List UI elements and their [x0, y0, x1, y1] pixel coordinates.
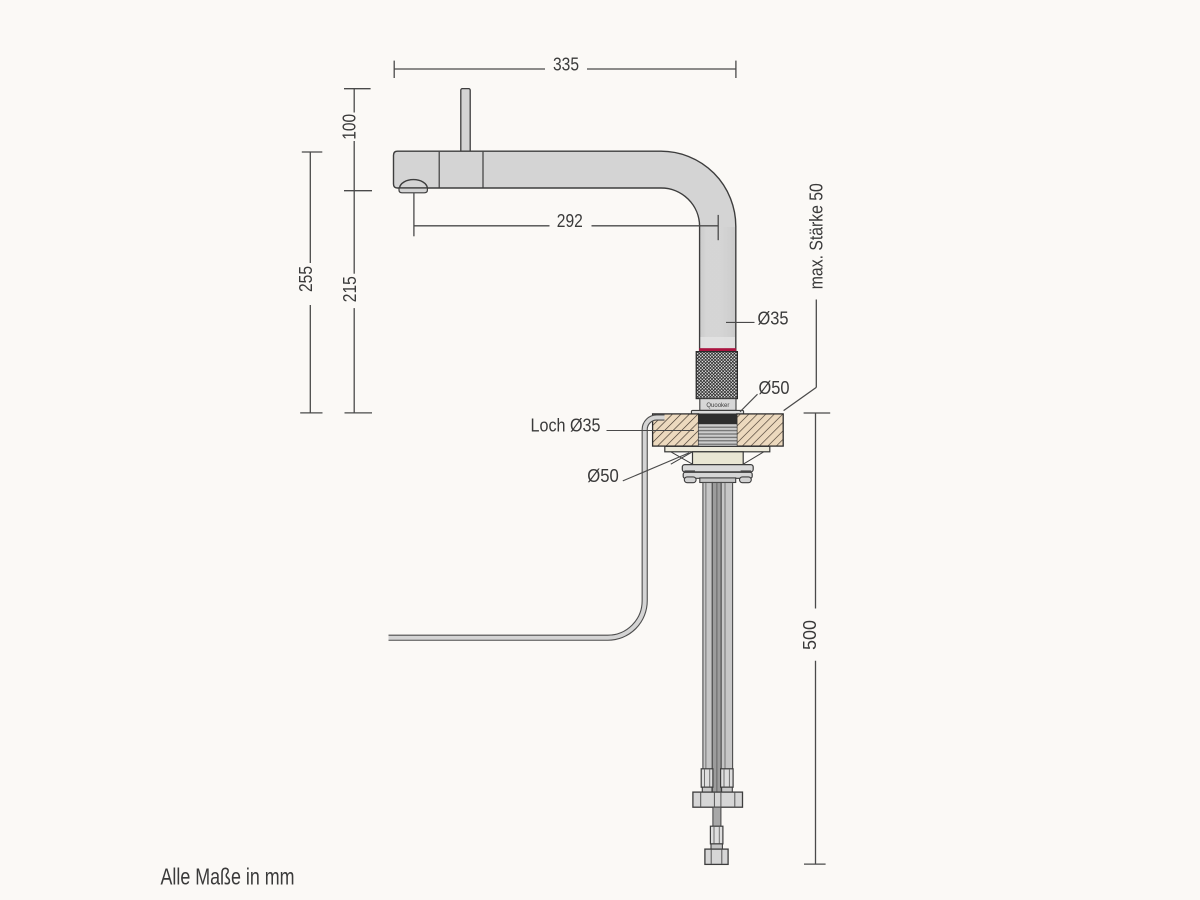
svg-text:Ø35: Ø35: [758, 309, 789, 329]
svg-text:Alle Maße in mm: Alle Maße in mm: [161, 864, 295, 890]
svg-text:292: 292: [557, 211, 583, 231]
svg-text:Ø50: Ø50: [759, 378, 790, 398]
svg-text:max. Stärke 50: max. Stärke 50: [807, 183, 827, 289]
svg-text:Quooker: Quooker: [706, 402, 730, 409]
svg-text:500: 500: [800, 620, 820, 650]
svg-text:100: 100: [340, 114, 360, 140]
svg-text:215: 215: [340, 276, 360, 302]
svg-text:Loch Ø35: Loch Ø35: [531, 416, 601, 436]
svg-text:335: 335: [553, 55, 579, 75]
svg-text:Ø50: Ø50: [587, 466, 619, 486]
svg-text:255: 255: [296, 266, 316, 292]
